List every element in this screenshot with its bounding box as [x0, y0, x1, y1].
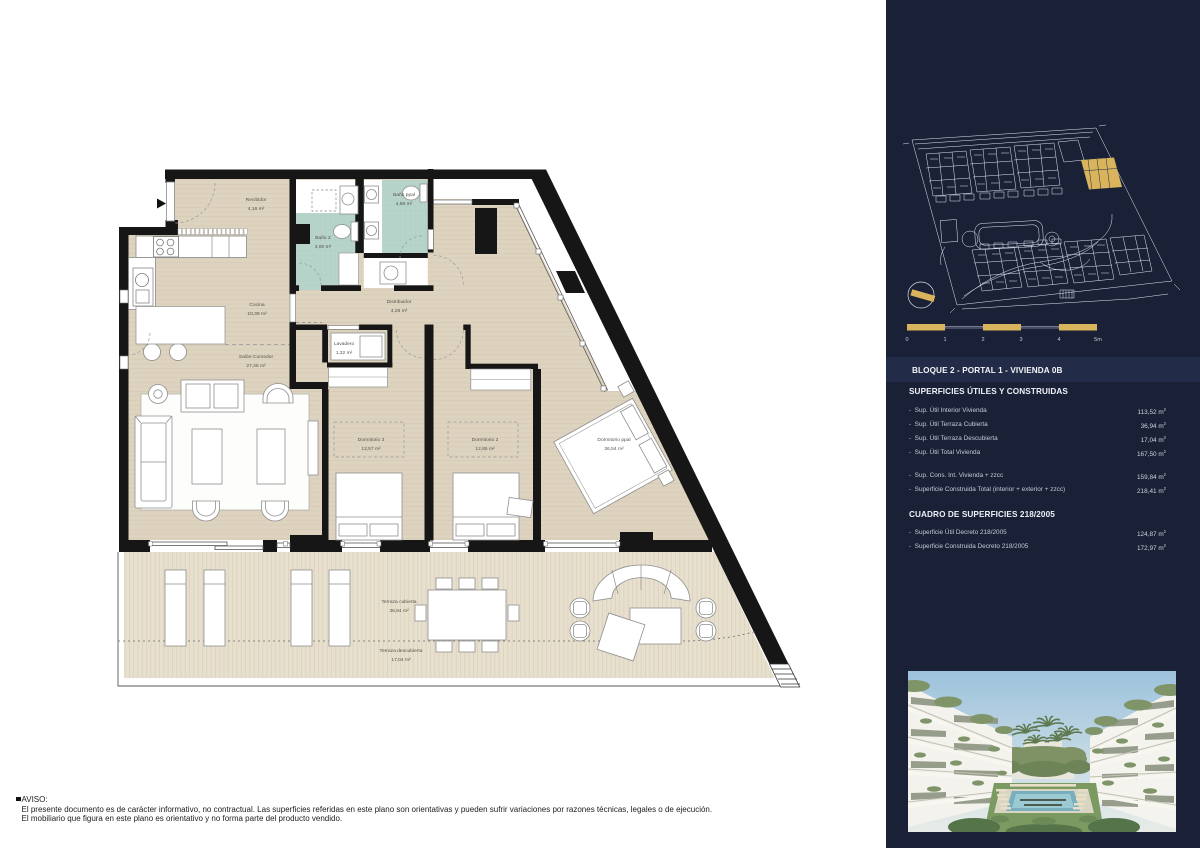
svg-text:1,32 m²: 1,32 m²: [336, 350, 353, 356]
svg-text:Baño 2: Baño 2: [315, 235, 331, 241]
svg-text:2: 2: [981, 337, 984, 343]
svg-text:Terraza cubierta: Terraza cubierta: [381, 599, 416, 605]
svg-text:36,94 m²: 36,94 m²: [389, 608, 409, 614]
svg-text:Dormitorio 3: Dormitorio 3: [358, 437, 385, 443]
svg-text:Cocina: Cocina: [249, 302, 265, 308]
svg-text:4,28 m²: 4,28 m²: [391, 308, 408, 314]
svg-text:27,46 m²: 27,46 m²: [246, 363, 266, 369]
svg-text:10,39 m²: 10,39 m²: [247, 311, 267, 317]
svg-text:13,57 m²: 13,57 m²: [361, 446, 381, 452]
svg-text:Dormitorio ppal: Dormitorio ppal: [597, 437, 630, 443]
svg-text:36,54 m²: 36,54 m²: [604, 446, 624, 452]
svg-text:Lavadero: Lavadero: [334, 341, 355, 347]
svg-text:0: 0: [905, 337, 908, 343]
svg-text:Recibidor: Recibidor: [246, 197, 267, 203]
svg-text:4: 4: [1057, 337, 1060, 343]
svg-text:3: 3: [1019, 337, 1022, 343]
svg-text:Salón-Comedor: Salón-Comedor: [239, 354, 274, 360]
svg-text:12,85 m²: 12,85 m²: [475, 446, 495, 452]
svg-text:17,04 m²: 17,04 m²: [391, 657, 411, 663]
svg-text:1: 1: [943, 337, 946, 343]
svg-text:5m: 5m: [1094, 337, 1102, 343]
svg-text:Terraza descubierta: Terraza descubierta: [380, 648, 423, 654]
svg-text:Baño ppal: Baño ppal: [393, 192, 415, 198]
svg-text:Dormitorio 2: Dormitorio 2: [472, 437, 499, 443]
svg-text:4,16 m²: 4,16 m²: [248, 206, 265, 212]
svg-text:Distribuidor: Distribuidor: [387, 299, 412, 305]
svg-text:4,96 m²: 4,96 m²: [396, 201, 413, 207]
svg-text:4,00 m²: 4,00 m²: [315, 244, 332, 250]
